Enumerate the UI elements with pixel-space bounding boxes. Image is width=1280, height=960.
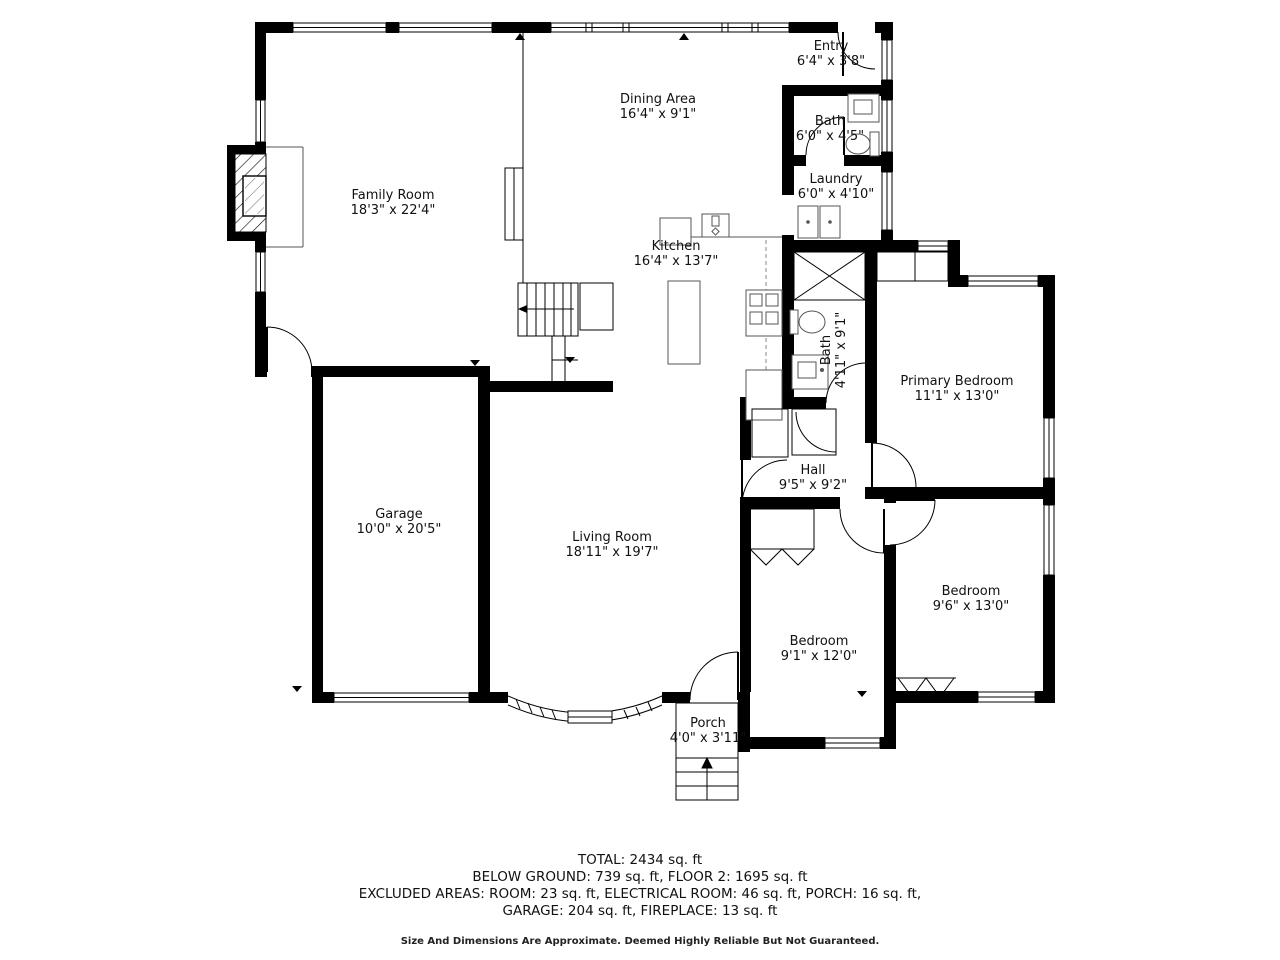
room-name: Hall (779, 463, 847, 478)
room-label-entry: Entry 6'4" x 3'8" (797, 39, 865, 69)
room-dims: 16'4" x 9'1" (620, 107, 696, 122)
room-dims: 9'5" x 9'2" (779, 478, 847, 493)
room-dims: 6'0" x 4'10" (798, 187, 874, 202)
bow-window (508, 696, 662, 723)
room-name: Bedroom (933, 584, 1009, 599)
floor-plan-drawing (0, 0, 1280, 960)
room-label-bedroom-right: Bedroom 9'6" x 13'0" (933, 584, 1009, 614)
room-dims: 6'0" x 4'5" (796, 129, 864, 144)
room-dims: 9'6" x 13'0" (933, 599, 1009, 614)
room-name: Entry (797, 39, 865, 54)
room-name: Bath (796, 114, 864, 129)
room-name: Family Room (351, 188, 436, 203)
room-label-laundry: Laundry 6'0" x 4'10" (798, 172, 874, 202)
room-dims: 9'1" x 12'0" (781, 649, 857, 664)
fireplace (227, 145, 303, 247)
room-name: Bedroom (781, 634, 857, 649)
area-summary: TOTAL: 2434 sq. ft BELOW GROUND: 739 sq.… (0, 852, 1280, 950)
floor-plan-page: Entry 6'4" x 3'8" Bath 6'0" x 4'5" Laund… (0, 0, 1280, 960)
summary-excluded-areas: EXCLUDED AREAS: ROOM: 23 sq. ft, ELECTRI… (0, 886, 1280, 903)
disclaimer-text: Size And Dimensions Are Approximate. Dee… (0, 933, 1280, 950)
room-dims: 18'11" x 19'7" (566, 545, 659, 560)
room-label-family-room: Family Room 18'3" x 22'4" (351, 188, 436, 218)
room-dims: 11'1" x 13'0" (900, 389, 1013, 404)
room-name: Bath (819, 312, 834, 388)
staircase (518, 283, 613, 381)
dimension-markers (292, 33, 867, 697)
room-name: Laundry (798, 172, 874, 187)
room-dims: 4'11" x 9'1" (834, 312, 849, 388)
room-dims: 4'0" x 3'11" (670, 731, 746, 746)
room-label-kitchen: Kitchen 16'4" x 13'7" (634, 239, 719, 269)
room-label-dining-area: Dining Area 16'4" x 9'1" (620, 92, 696, 122)
room-name: Kitchen (634, 239, 719, 254)
room-dims: 10'0" x 20'5" (357, 522, 442, 537)
room-label-bath-upper: Bath 6'0" x 4'5" (796, 114, 864, 144)
room-label-garage: Garage 10'0" x 20'5" (357, 507, 442, 537)
summary-below-ground: BELOW GROUND: 739 sq. ft, FLOOR 2: 1695 … (0, 869, 1280, 886)
room-label-primary-bedroom: Primary Bedroom 11'1" x 13'0" (900, 374, 1013, 404)
room-name: Primary Bedroom (900, 374, 1013, 389)
room-name: Living Room (566, 530, 659, 545)
room-dims: 16'4" x 13'7" (634, 254, 719, 269)
room-name: Garage (357, 507, 442, 522)
interior-partitions (505, 33, 523, 283)
room-label-hall: Hall 9'5" x 9'2" (779, 463, 847, 493)
room-label-bath-middle: Bath 4'11" x 9'1" (819, 312, 849, 388)
room-label-bedroom-left: Bedroom 9'1" x 12'0" (781, 634, 857, 664)
room-name: Porch (670, 716, 746, 731)
room-label-porch: Porch 4'0" x 3'11" (670, 716, 746, 746)
laundry-appliances (798, 206, 840, 238)
room-label-living-room: Living Room 18'11" x 19'7" (566, 530, 659, 560)
summary-garage-fireplace: GARAGE: 204 sq. ft, FIREPLACE: 13 sq. ft (0, 903, 1280, 920)
room-dims: 18'3" x 22'4" (351, 203, 436, 218)
room-dims: 6'4" x 3'8" (797, 54, 865, 69)
room-name: Dining Area (620, 92, 696, 107)
summary-total: TOTAL: 2434 sq. ft (0, 852, 1280, 869)
